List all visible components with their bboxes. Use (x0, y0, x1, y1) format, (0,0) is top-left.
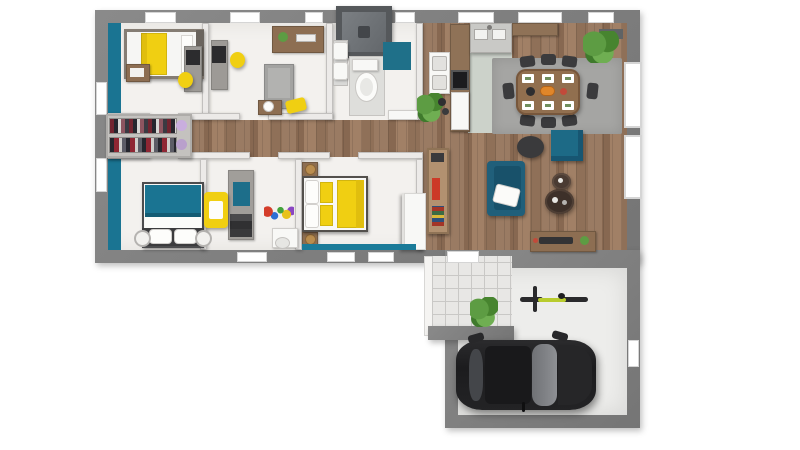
shelf-dark-item (431, 153, 444, 162)
yellow-desk-chair-bedroom1 (178, 72, 193, 88)
clothes-closet (106, 114, 192, 158)
dining-chair-n3 (561, 55, 577, 68)
monitor-bedroom1 (186, 50, 200, 65)
armchair-cushion (209, 201, 223, 219)
dining-chair-n1 (519, 55, 535, 68)
car-antenna (522, 402, 525, 412)
table-decor-dot-3 (562, 200, 567, 205)
sink-1 (333, 42, 348, 60)
bike-saddle (558, 293, 565, 299)
bike-handlebar (533, 286, 537, 312)
kitchen-base-cabinet (451, 92, 469, 130)
bicycle (516, 284, 592, 320)
bolster-right (197, 232, 210, 245)
daybed-cushion (268, 68, 290, 98)
window-bottom-1 (237, 252, 267, 262)
window-left-1 (96, 82, 107, 115)
dining-chair-n2 (541, 54, 556, 65)
window-bottom-2 (327, 252, 355, 262)
yellow-cushion-2 (320, 205, 333, 226)
center-dish-red (560, 88, 567, 95)
floor-plan-scene (0, 0, 800, 450)
dark-vase-1 (438, 98, 446, 106)
teal-duvet (145, 185, 201, 217)
place-setting-2 (542, 74, 554, 83)
book-spines (432, 206, 444, 226)
master-pillow-2 (306, 205, 318, 227)
master-bed (302, 176, 368, 232)
dining-chair-s2 (541, 117, 556, 128)
white-wardrobe (402, 193, 426, 250)
dining-corner-plant (583, 31, 619, 63)
window-top-5 (458, 12, 494, 23)
car-rear-window (469, 349, 483, 401)
vanity-stool (276, 238, 289, 248)
window-left-2 (96, 158, 107, 192)
corridor-plant (417, 93, 443, 122)
teal-ottoman (551, 130, 583, 161)
sink-2 (333, 62, 348, 80)
dark-pouf (517, 136, 544, 158)
lamp-south (306, 235, 315, 244)
shelf-plant (278, 32, 288, 42)
washer-dryer-column (429, 52, 450, 94)
clothes-rack-bottom (110, 138, 176, 152)
window-top-7 (588, 12, 614, 23)
toilet-bowl (356, 73, 377, 101)
window-top-2 (230, 12, 260, 23)
dining-chair-w (502, 82, 515, 99)
pillow-right (175, 230, 196, 243)
wall-hall-south-c (278, 152, 330, 159)
car-roof (485, 346, 531, 404)
yellow-duvet (337, 180, 364, 228)
teal-bath-mat (383, 42, 411, 70)
center-dish-dark (526, 87, 535, 96)
soundbar (539, 237, 573, 244)
kitchen-sink-basin-2 (492, 29, 506, 40)
window-right-living-2 (624, 135, 642, 199)
yellow-cushion-1 (320, 182, 333, 203)
coffee-table-small (552, 173, 571, 190)
sideboard (530, 231, 596, 252)
yellow-desk-chair-bedroom2 (230, 52, 245, 68)
dark-vase-2 (442, 108, 449, 115)
lamp-north (306, 165, 315, 174)
wall-bathroom-left (326, 23, 333, 120)
clothes-rack-top (110, 119, 176, 133)
hat-box-2 (176, 139, 187, 150)
red-item (432, 178, 440, 200)
window-right-living-1 (624, 62, 642, 128)
place-setting-1 (522, 74, 534, 83)
kitchen-upper-cabinets (512, 23, 558, 36)
dining-table (516, 69, 580, 115)
nightstand (126, 64, 150, 82)
window-bottom-3 (368, 252, 394, 262)
kitchen-counter-top (470, 23, 512, 53)
dining-chair-e (586, 82, 599, 99)
dining-chair-s1 (519, 114, 535, 127)
shower-drain (358, 26, 370, 38)
bookshelf (427, 148, 449, 234)
pinboard-teal (233, 182, 250, 206)
place-setting-4 (522, 101, 534, 110)
washer-door (432, 56, 447, 71)
car-windshield (532, 344, 557, 406)
faucet (487, 25, 492, 30)
table-lamp (264, 102, 273, 111)
shelf-items (296, 34, 316, 42)
pillow-left (150, 230, 171, 243)
table-decor-dot-1 (558, 178, 563, 183)
stove (451, 70, 469, 90)
nightstand-drawer (130, 68, 144, 77)
master-pillow-1 (306, 181, 318, 203)
front-door (447, 251, 479, 263)
window-garage-right (628, 340, 639, 367)
teal-double-bed (142, 182, 204, 248)
sideboard-red-item (533, 238, 538, 243)
kitchen-sink-basin-1 (474, 29, 488, 40)
black-car (456, 340, 596, 410)
coffee-table-large (545, 189, 574, 214)
sideboard-plant (580, 236, 589, 245)
toilet-tank (352, 59, 378, 71)
table-decor-dot-2 (552, 197, 558, 203)
hat-box-1 (176, 120, 187, 131)
yellow-armchair (204, 192, 228, 228)
porch-plant (470, 297, 498, 327)
window-top-1 (145, 12, 176, 23)
dryer-door (432, 75, 447, 90)
center-dish-orange (541, 87, 554, 95)
teal-sofa (487, 161, 525, 216)
bathroom-door (388, 110, 418, 120)
teal-baseboard (302, 244, 416, 250)
place-setting-3 (562, 74, 574, 83)
dark-shelf (230, 214, 252, 237)
window-top-6 (518, 12, 562, 23)
monitor-bedroom2 (212, 46, 226, 63)
wall-shelf-bedroom2 (272, 26, 324, 53)
bolster-left (136, 232, 149, 245)
wall-hall-south-d (358, 152, 423, 159)
place-setting-5 (542, 101, 554, 110)
toilet-seat (360, 78, 373, 96)
place-setting-6 (562, 101, 574, 110)
car-hood (558, 345, 592, 405)
window-top-4 (395, 12, 415, 23)
dining-chair-s3 (561, 114, 577, 127)
window-top-3 (305, 12, 323, 23)
toys-on-floor (264, 206, 294, 220)
study-unit (228, 170, 254, 240)
